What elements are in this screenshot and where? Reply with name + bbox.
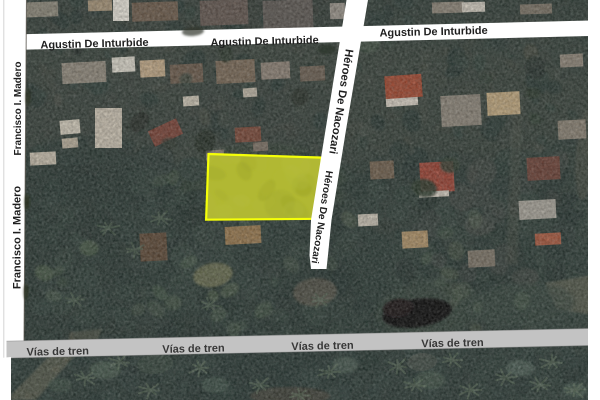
- svg-text:Vías de tren: Vías de tren: [162, 343, 225, 356]
- svg-text:Vías de tren: Vías de tren: [291, 340, 354, 353]
- svg-text:Francisco I. Madero: Francisco I. Madero: [11, 186, 23, 290]
- svg-text:Vías de tren: Vías de tren: [26, 345, 89, 358]
- svg-text:Francisco I. Madero: Francisco I. Madero: [13, 62, 24, 156]
- svg-text:Vías de tren: Vías de tren: [421, 337, 484, 350]
